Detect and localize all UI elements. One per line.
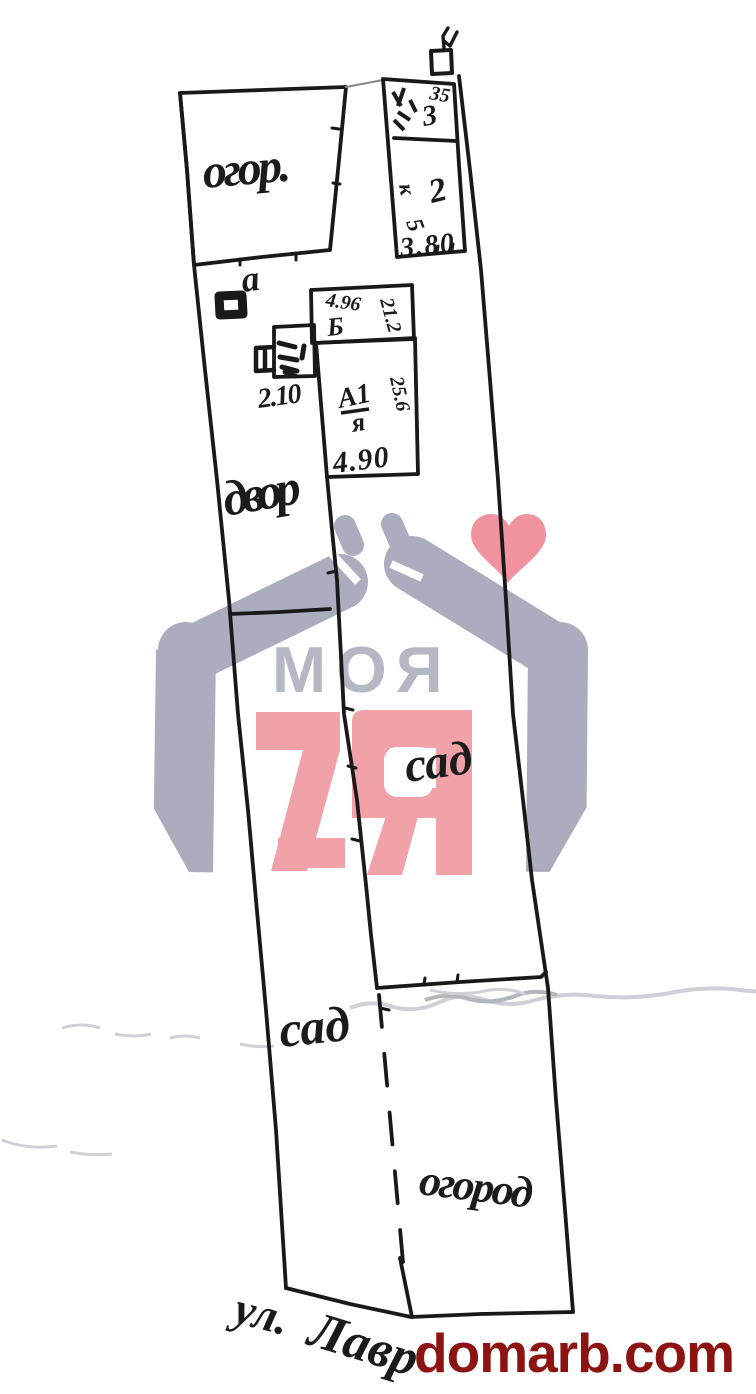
svg-text:сад: сад	[276, 995, 352, 1058]
svg-text:МОЯ: МОЯ	[272, 633, 453, 706]
svg-text:огор.: огор.	[200, 138, 292, 198]
svg-text:domarb.com: domarb.com	[414, 1322, 734, 1384]
svg-text:Б: Б	[325, 311, 345, 342]
svg-text:35: 35	[427, 82, 452, 107]
svg-text:4.90: 4.90	[330, 440, 391, 480]
svg-text:2.10: 2.10	[255, 378, 304, 415]
svg-text:сад: сад	[401, 731, 476, 793]
